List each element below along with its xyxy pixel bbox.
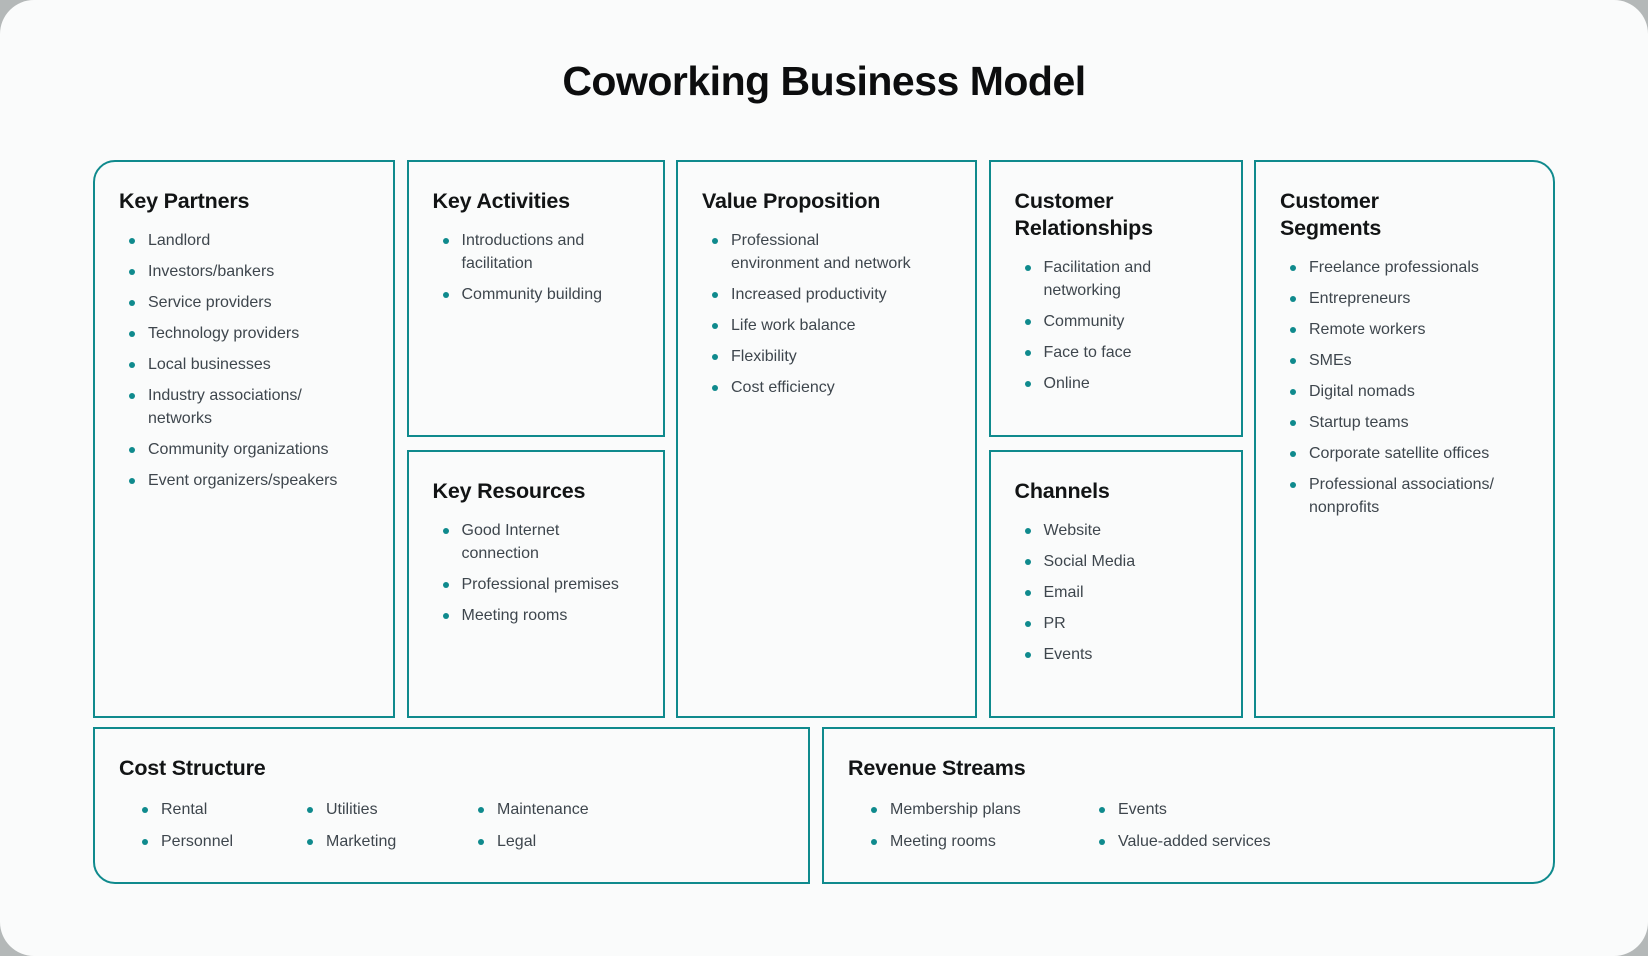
list-item-text: Events bbox=[1044, 643, 1093, 666]
list-item: Email bbox=[1025, 581, 1219, 604]
bullet-icon bbox=[1025, 528, 1031, 534]
list-item: Professional premises bbox=[443, 573, 641, 596]
list-item: Personnel bbox=[142, 830, 284, 853]
list-item-text: PR bbox=[1044, 612, 1066, 635]
list-item-text: Flexibility bbox=[731, 345, 797, 368]
bullet-icon bbox=[1290, 265, 1296, 271]
value-proposition-list: Professional environment and networkIncr… bbox=[702, 229, 953, 399]
list-item: Remote workers bbox=[1290, 318, 1531, 341]
list-item-text: Startup teams bbox=[1309, 411, 1409, 434]
key-activities-box: Key Activities Introductions and facilit… bbox=[407, 160, 665, 437]
canvas-bottom-grid: Cost Structure RentalPersonnel Utilities… bbox=[93, 727, 1555, 880]
bullet-icon bbox=[443, 292, 449, 298]
list-item-text: Entrepreneurs bbox=[1309, 287, 1410, 310]
key-activities-list: Introductions and facilitationCommunity … bbox=[433, 229, 641, 306]
list-item-text: Professional environment and network bbox=[731, 229, 911, 275]
list-item: Professional environment and network bbox=[712, 229, 953, 275]
bullet-icon bbox=[478, 807, 484, 813]
list-item: Event organizers/speakers bbox=[129, 469, 371, 492]
bullet-icon bbox=[871, 807, 877, 813]
list-item: Community organizations bbox=[129, 438, 371, 461]
list-item: Events bbox=[1099, 798, 1271, 821]
key-resources-box: Key Resources Good Internet connectionPr… bbox=[407, 450, 665, 718]
list-item-text: Website bbox=[1044, 519, 1102, 542]
list-item: Flexibility bbox=[712, 345, 953, 368]
revenue-streams-column-2: EventsValue-added services bbox=[1076, 798, 1271, 862]
revenue-streams-columns: Membership plansMeeting rooms EventsValu… bbox=[848, 798, 1531, 862]
list-item-text: Community bbox=[1044, 310, 1125, 333]
list-item: PR bbox=[1025, 612, 1219, 635]
revenue-streams-box: Revenue Streams Membership plansMeeting … bbox=[822, 727, 1555, 884]
list-item: Meeting rooms bbox=[443, 604, 641, 627]
value-proposition-box: Value Proposition Professional environme… bbox=[676, 160, 977, 718]
list-item-text: Social Media bbox=[1044, 550, 1136, 573]
list-item: Social Media bbox=[1025, 550, 1219, 573]
bullet-icon bbox=[1099, 807, 1105, 813]
list-item: Technology providers bbox=[129, 322, 371, 345]
relationships-channels-column: Customer Relationships Facilitation and … bbox=[989, 160, 1243, 718]
list-item: Meeting rooms bbox=[871, 830, 1076, 853]
page-title: Coworking Business Model bbox=[0, 58, 1648, 105]
list-item-text: Community building bbox=[462, 283, 603, 306]
list-item: Value-added services bbox=[1099, 830, 1271, 853]
list-item: Face to face bbox=[1025, 341, 1219, 364]
list-item-text: Cost efficiency bbox=[731, 376, 835, 399]
bullet-icon bbox=[129, 300, 135, 306]
list-item: Professional associations/ nonprofits bbox=[1290, 473, 1531, 519]
list-item-text: Corporate satellite offices bbox=[1309, 442, 1489, 465]
list-item: Landlord bbox=[129, 229, 371, 252]
key-partners-title: Key Partners bbox=[119, 188, 371, 215]
cost-structure-box: Cost Structure RentalPersonnel Utilities… bbox=[93, 727, 810, 884]
customer-segments-title: Customer Segments bbox=[1280, 188, 1531, 242]
list-item: Events bbox=[1025, 643, 1219, 666]
bullet-icon bbox=[1290, 296, 1296, 302]
bullet-icon bbox=[1290, 451, 1296, 457]
bullet-icon bbox=[1290, 420, 1296, 426]
list-item-text: Professional premises bbox=[462, 573, 619, 596]
list-item: Utilities bbox=[307, 798, 455, 821]
list-item-text: Digital nomads bbox=[1309, 380, 1415, 403]
list-item: Entrepreneurs bbox=[1290, 287, 1531, 310]
cost-structure-column-1: RentalPersonnel bbox=[119, 798, 284, 862]
list-item: Service providers bbox=[129, 291, 371, 314]
bullet-icon bbox=[1290, 327, 1296, 333]
bullet-icon bbox=[1025, 381, 1031, 387]
list-item: Marketing bbox=[307, 830, 455, 853]
list-item-text: Local businesses bbox=[148, 353, 271, 376]
list-item-text: Professional associations/ nonprofits bbox=[1309, 473, 1494, 519]
list-item: Introductions and facilitation bbox=[443, 229, 641, 275]
bullet-icon bbox=[1025, 652, 1031, 658]
list-item-text: Email bbox=[1044, 581, 1084, 604]
channels-title: Channels bbox=[1015, 478, 1219, 505]
bullet-icon bbox=[712, 238, 718, 244]
list-item: Life work balance bbox=[712, 314, 953, 337]
revenue-streams-title: Revenue Streams bbox=[848, 755, 1531, 782]
list-item-text: Maintenance bbox=[497, 798, 589, 821]
list-item: Local businesses bbox=[129, 353, 371, 376]
bullet-icon bbox=[1290, 389, 1296, 395]
bullet-icon bbox=[307, 807, 313, 813]
list-item: Rental bbox=[142, 798, 284, 821]
bullet-icon bbox=[129, 362, 135, 368]
list-item-text: Freelance professionals bbox=[1309, 256, 1479, 279]
list-item-text: Life work balance bbox=[731, 314, 856, 337]
key-partners-list: LandlordInvestors/bankersService provide… bbox=[119, 229, 371, 492]
list-item-text: Investors/bankers bbox=[148, 260, 274, 283]
bullet-icon bbox=[1025, 590, 1031, 596]
list-item: Membership plans bbox=[871, 798, 1076, 821]
bullet-icon bbox=[129, 447, 135, 453]
channels-list: WebsiteSocial MediaEmailPREvents bbox=[1015, 519, 1219, 666]
list-item-text: Legal bbox=[497, 830, 536, 853]
bullet-icon bbox=[1290, 358, 1296, 364]
list-item-text: Event organizers/speakers bbox=[148, 469, 337, 492]
customer-relationships-box: Customer Relationships Facilitation and … bbox=[989, 160, 1243, 437]
list-item: Online bbox=[1025, 372, 1219, 395]
list-item-text: Online bbox=[1044, 372, 1090, 395]
list-item: Website bbox=[1025, 519, 1219, 542]
list-item: Startup teams bbox=[1290, 411, 1531, 434]
bullet-icon bbox=[1025, 319, 1031, 325]
list-item-text: Good Internet connection bbox=[462, 519, 560, 565]
bullet-icon bbox=[129, 269, 135, 275]
list-item-text: Face to face bbox=[1044, 341, 1132, 364]
list-item-text: Rental bbox=[161, 798, 207, 821]
list-item-text: Increased productivity bbox=[731, 283, 887, 306]
bullet-icon bbox=[443, 613, 449, 619]
bullet-icon bbox=[712, 292, 718, 298]
list-item: Investors/bankers bbox=[129, 260, 371, 283]
bullet-icon bbox=[443, 582, 449, 588]
bullet-icon bbox=[443, 528, 449, 534]
bullet-icon bbox=[129, 393, 135, 399]
cost-structure-columns: RentalPersonnel UtilitiesMarketing Maint… bbox=[119, 798, 786, 862]
customer-relationships-title: Customer Relationships bbox=[1015, 188, 1219, 242]
list-item: Good Internet connection bbox=[443, 519, 641, 565]
bullet-icon bbox=[1025, 265, 1031, 271]
list-item-text: Events bbox=[1118, 798, 1167, 821]
list-item: Community building bbox=[443, 283, 641, 306]
canvas-top-grid: Key Partners LandlordInvestors/bankersSe… bbox=[93, 160, 1555, 718]
list-item-text: Personnel bbox=[161, 830, 233, 853]
cost-structure-column-3: MaintenanceLegal bbox=[455, 798, 589, 862]
bullet-icon bbox=[1025, 350, 1031, 356]
list-item-text: Remote workers bbox=[1309, 318, 1425, 341]
list-item: Freelance professionals bbox=[1290, 256, 1531, 279]
list-item: SMEs bbox=[1290, 349, 1531, 372]
list-item-text: Service providers bbox=[148, 291, 272, 314]
bullet-icon bbox=[129, 331, 135, 337]
key-activities-title: Key Activities bbox=[433, 188, 641, 215]
list-item-text: SMEs bbox=[1309, 349, 1352, 372]
bullet-icon bbox=[1025, 559, 1031, 565]
customer-segments-list: Freelance professionalsEntrepreneursRemo… bbox=[1280, 256, 1531, 519]
list-item: Facilitation and networking bbox=[1025, 256, 1219, 302]
customer-segments-box: Customer Segments Freelance professional… bbox=[1254, 160, 1555, 718]
list-item: Legal bbox=[478, 830, 589, 853]
list-item: Cost efficiency bbox=[712, 376, 953, 399]
revenue-streams-column-1: Membership plansMeeting rooms bbox=[848, 798, 1076, 862]
bullet-icon bbox=[129, 238, 135, 244]
list-item-text: Utilities bbox=[326, 798, 378, 821]
business-model-canvas: Key Partners LandlordInvestors/bankersSe… bbox=[93, 160, 1555, 880]
bullet-icon bbox=[142, 839, 148, 845]
bullet-icon bbox=[129, 478, 135, 484]
list-item-text: Value-added services bbox=[1118, 830, 1271, 853]
list-item: Maintenance bbox=[478, 798, 589, 821]
list-item-text: Meeting rooms bbox=[462, 604, 568, 627]
list-item-text: Community organizations bbox=[148, 438, 329, 461]
bullet-icon bbox=[1099, 839, 1105, 845]
list-item-text: Landlord bbox=[148, 229, 210, 252]
bullet-icon bbox=[871, 839, 877, 845]
bullet-icon bbox=[1290, 482, 1296, 488]
list-item-text: Technology providers bbox=[148, 322, 299, 345]
list-item: Digital nomads bbox=[1290, 380, 1531, 403]
bullet-icon bbox=[443, 238, 449, 244]
list-item: Corporate satellite offices bbox=[1290, 442, 1531, 465]
list-item-text: Membership plans bbox=[890, 798, 1021, 821]
channels-box: Channels WebsiteSocial MediaEmailPREvent… bbox=[989, 450, 1243, 718]
list-item: Increased productivity bbox=[712, 283, 953, 306]
list-item-text: Marketing bbox=[326, 830, 396, 853]
bullet-icon bbox=[307, 839, 313, 845]
key-resources-list: Good Internet connectionProfessional pre… bbox=[433, 519, 641, 627]
list-item-text: Facilitation and networking bbox=[1044, 256, 1152, 302]
key-partners-box: Key Partners LandlordInvestors/bankersSe… bbox=[93, 160, 395, 718]
key-resources-title: Key Resources bbox=[433, 478, 641, 505]
cost-structure-title: Cost Structure bbox=[119, 755, 786, 782]
bullet-icon bbox=[142, 807, 148, 813]
bullet-icon bbox=[712, 354, 718, 360]
list-item-text: Industry associations/ networks bbox=[148, 384, 302, 430]
list-item-text: Meeting rooms bbox=[890, 830, 996, 853]
list-item: Industry associations/ networks bbox=[129, 384, 371, 430]
bullet-icon bbox=[1025, 621, 1031, 627]
canvas-card: Coworking Business Model Key Partners La… bbox=[0, 0, 1648, 956]
activities-resources-column: Key Activities Introductions and facilit… bbox=[407, 160, 665, 718]
cost-structure-column-2: UtilitiesMarketing bbox=[284, 798, 455, 862]
bullet-icon bbox=[712, 385, 718, 391]
bullet-icon bbox=[712, 323, 718, 329]
bullet-icon bbox=[478, 839, 484, 845]
list-item: Community bbox=[1025, 310, 1219, 333]
customer-relationships-list: Facilitation and networkingCommunityFace… bbox=[1015, 256, 1219, 395]
value-proposition-title: Value Proposition bbox=[702, 188, 953, 215]
list-item-text: Introductions and facilitation bbox=[462, 229, 585, 275]
